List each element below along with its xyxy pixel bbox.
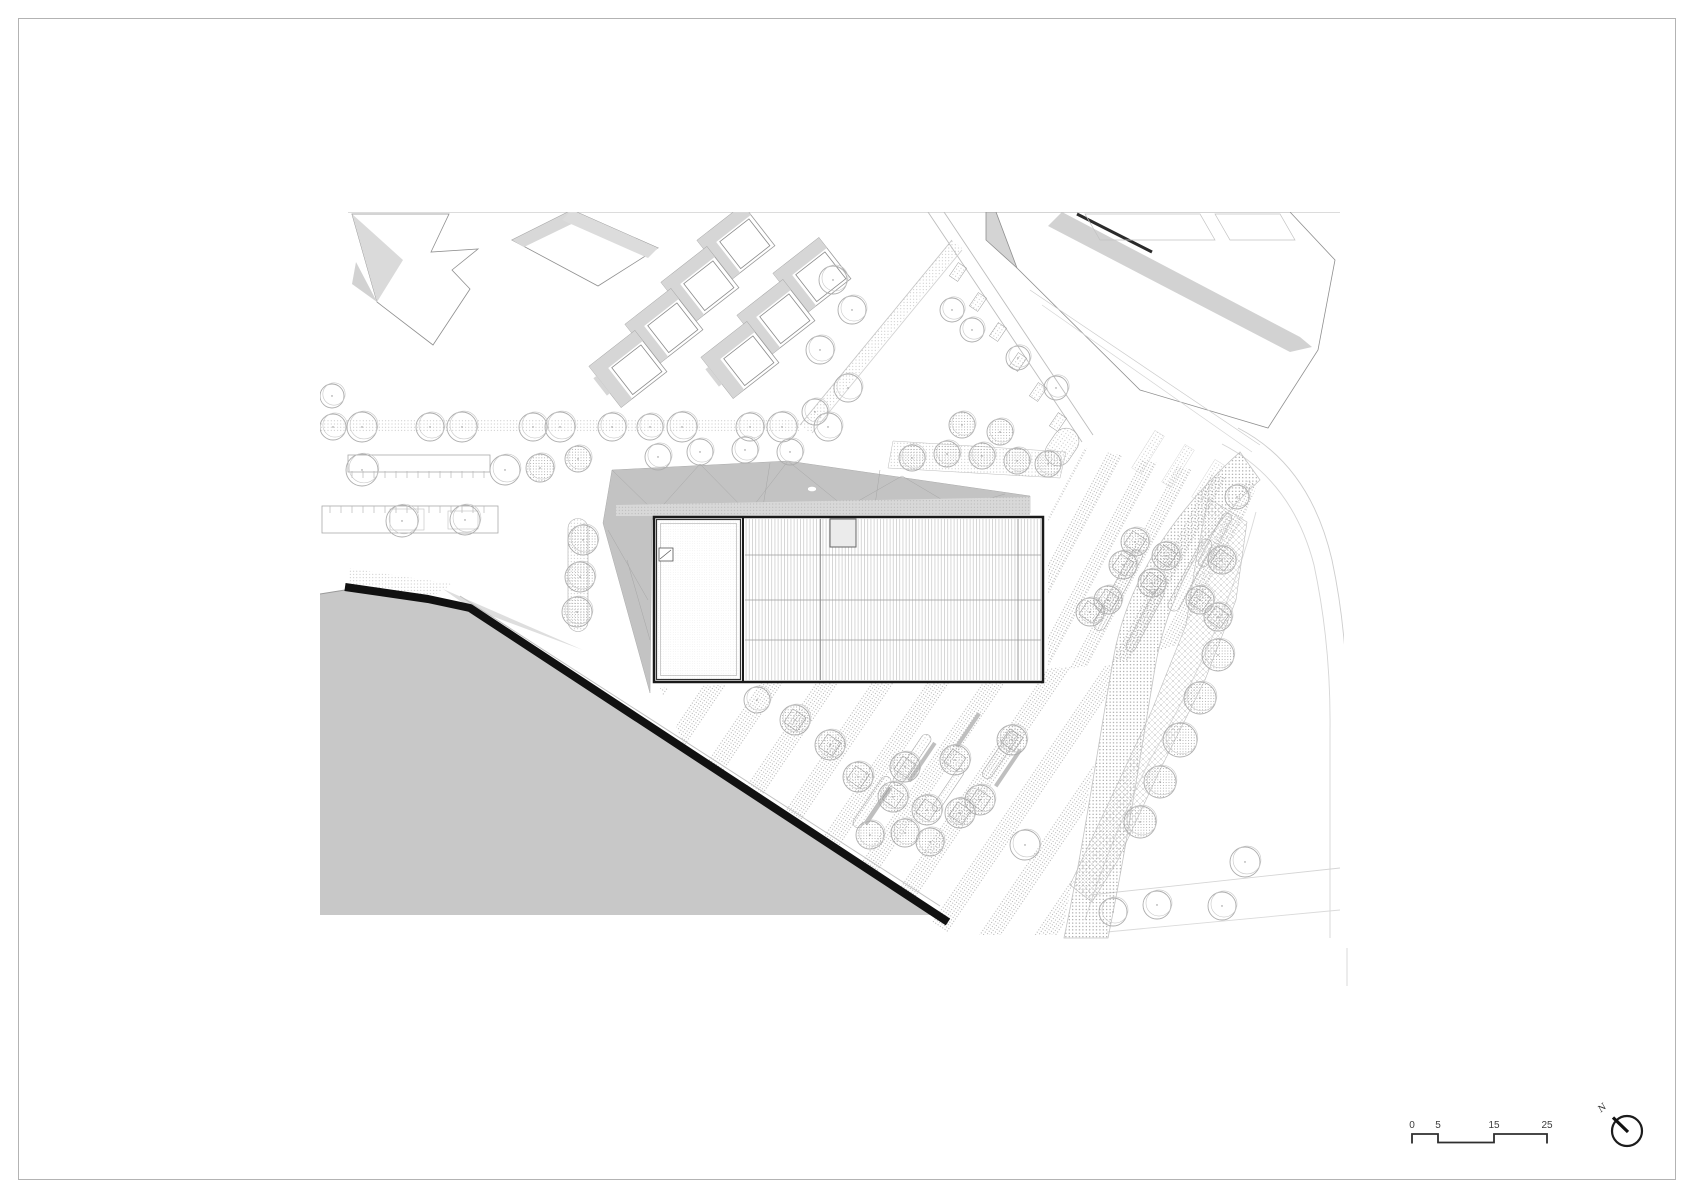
tree (687, 438, 714, 465)
north-arrow-icon: N (1596, 1101, 1642, 1146)
tree (320, 383, 345, 408)
tree (526, 453, 555, 482)
tree (806, 335, 835, 364)
roof-skylight (830, 519, 856, 547)
drawing-sheet: 0 5 15 25 N (0, 0, 1696, 1200)
tree (568, 524, 599, 555)
tree (565, 445, 592, 472)
tree (838, 295, 867, 324)
tree (987, 418, 1014, 445)
tree (1144, 765, 1177, 798)
tree (1202, 638, 1235, 671)
tree (645, 443, 672, 470)
scale-label-5: 5 (1435, 1120, 1441, 1131)
tree (940, 297, 965, 322)
tree (969, 442, 996, 469)
tree (450, 504, 481, 535)
scale-label-15: 15 (1488, 1120, 1500, 1131)
promenade-bench (348, 455, 490, 472)
tree (949, 411, 976, 438)
tree (1044, 375, 1069, 400)
site-plan-canvas: 0 5 15 25 N (0, 0, 1696, 1200)
tree (346, 453, 379, 486)
tree (1208, 891, 1237, 920)
tree (565, 561, 596, 592)
tree (562, 596, 593, 627)
scale-bar-rule (1412, 1134, 1547, 1144)
tree (1143, 890, 1172, 919)
tree (814, 412, 843, 441)
tree (1184, 681, 1217, 714)
atrium (657, 520, 741, 680)
tree (934, 440, 961, 467)
main-building (654, 517, 1043, 682)
scale-bar: 0 5 15 25 (1409, 1120, 1553, 1144)
tree (777, 438, 804, 465)
tree (1124, 805, 1157, 838)
roof-hatch (745, 519, 1041, 680)
scale-label-0: 0 (1409, 1120, 1415, 1131)
context-buildings (352, 210, 1335, 452)
atrium-stair-icon (659, 548, 673, 561)
tree (1230, 846, 1261, 877)
tree (1163, 722, 1198, 757)
tree (490, 454, 521, 485)
tree (960, 317, 985, 342)
scale-label-25: 25 (1541, 1120, 1553, 1131)
roof-vent (808, 486, 817, 491)
north-label: N (1596, 1101, 1610, 1115)
